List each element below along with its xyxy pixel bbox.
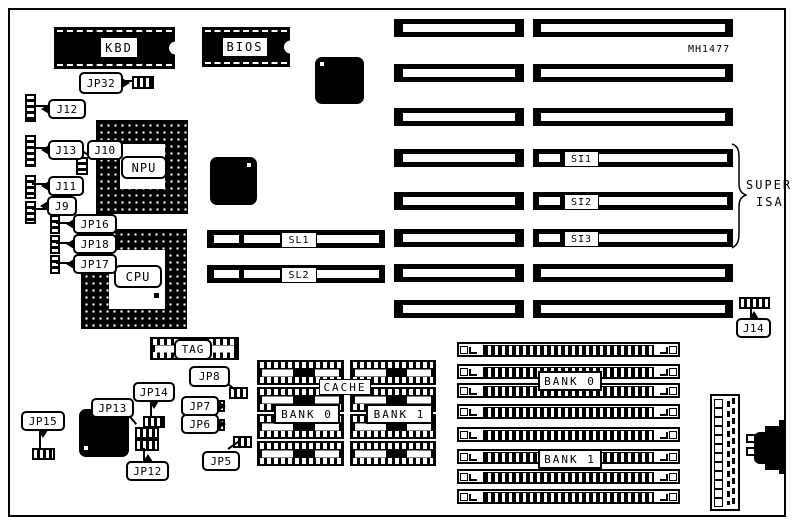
callout-jp12-text: JP12 <box>133 465 162 478</box>
dip-pins <box>353 362 433 368</box>
keyboard-din-connector-nose <box>754 432 768 464</box>
si3-slot-label: SI3 <box>564 231 599 247</box>
din-pin <box>746 434 756 443</box>
dip-body <box>355 450 386 457</box>
simm-socket <box>457 404 680 419</box>
simm-latch <box>661 367 677 376</box>
slot-key <box>597 234 727 242</box>
simm-latch <box>661 386 677 395</box>
simm-latch <box>460 367 476 376</box>
simm-socket <box>457 427 680 442</box>
simm-latch <box>460 386 476 395</box>
cache-area-label: CACHE <box>319 379 371 395</box>
cache-chip <box>350 441 436 466</box>
power-connector <box>710 394 740 511</box>
npu-label: NPU <box>121 156 167 179</box>
slot-key <box>541 269 725 277</box>
simm-latch <box>661 345 677 354</box>
simm-socket <box>457 342 680 357</box>
callout-j11: J11 <box>48 176 84 196</box>
npu-socket: NPU <box>96 120 188 214</box>
dip-pins <box>260 431 341 437</box>
kbd-chip-pins-top <box>57 30 172 32</box>
slot-key <box>403 69 515 77</box>
motherboard-diagram: KBD BIOS NPU CPU <box>0 0 800 527</box>
si2-slot-label: SI2 <box>564 194 599 210</box>
bios-chip-pins-bottom <box>205 62 287 64</box>
callout-jp8-text: JP8 <box>199 370 220 383</box>
pin-header-jp17 <box>50 255 60 274</box>
dip-pins <box>260 458 341 464</box>
simm-latch <box>460 430 476 439</box>
model-number: MH1477 <box>688 44 730 55</box>
arrow-up-icon <box>143 454 153 462</box>
simm-latch <box>460 407 476 416</box>
arrow-left-icon <box>66 259 74 269</box>
pin-header-jp18 <box>50 235 60 254</box>
cpu-label: CPU <box>114 265 162 288</box>
callout-jp13-text: JP13 <box>98 402 127 415</box>
isa-slot <box>533 264 733 282</box>
sl2-slot-label: SL2 <box>281 267 317 283</box>
glue-chip-mid <box>210 157 257 205</box>
callout-jp7: JP7 <box>181 396 219 416</box>
din-pin <box>746 447 756 456</box>
jumper-jp15 <box>32 448 55 460</box>
callout-jp32-text: JP32 <box>87 77 116 90</box>
kbd-chip-pins-bottom <box>57 64 172 66</box>
power-pin <box>714 435 723 444</box>
simm-bank0-label: BANK 0 <box>538 371 602 391</box>
callout-j9: J9 <box>47 196 77 216</box>
bios-chip-label: BIOS <box>222 37 268 57</box>
callout-jp32: JP32 <box>79 72 123 94</box>
dip-body <box>262 369 293 376</box>
pin-header-j9 <box>25 201 36 224</box>
simm-pins <box>483 345 654 356</box>
callout-j9-text: J9 <box>55 200 69 213</box>
callout-jp16: JP16 <box>73 214 117 234</box>
dip-pins <box>353 431 433 437</box>
sl1-slot-label: SL1 <box>281 232 317 248</box>
si1-slot-label: SI1 <box>564 151 599 167</box>
slot-key <box>403 305 515 313</box>
slot-key <box>403 154 515 162</box>
pin-header-j12 <box>25 94 36 122</box>
isa-slot <box>394 149 524 167</box>
arrow-left-icon <box>66 239 74 249</box>
slot-key <box>403 113 515 121</box>
dip-body <box>407 396 431 403</box>
slot-key <box>539 234 560 242</box>
dip-pins <box>260 362 341 368</box>
dip-body <box>262 423 293 430</box>
tag-chip-label: TAG <box>174 339 212 360</box>
dip-body <box>355 369 386 376</box>
dip-body <box>355 396 386 403</box>
kbd-chip-notch <box>169 42 176 55</box>
slot-key <box>214 270 239 278</box>
slot-key <box>315 270 379 278</box>
callout-jp18: JP18 <box>73 234 117 254</box>
jumper-jp13 <box>135 427 159 439</box>
slot-key <box>244 270 280 278</box>
isa-slot <box>394 108 524 126</box>
callout-j14-text: J14 <box>743 322 764 335</box>
isa-slot <box>533 64 733 82</box>
arrow-left-icon <box>66 219 74 229</box>
slot-key <box>597 154 727 162</box>
isa-slot <box>394 300 524 318</box>
super-isa-text-line2: ISA <box>756 195 784 209</box>
slot-key <box>539 197 560 205</box>
callout-jp15: JP15 <box>21 411 65 431</box>
dip-body <box>315 369 339 376</box>
isa-slot <box>394 264 524 282</box>
jumper-jp12 <box>135 439 159 451</box>
callout-jp6: JP6 <box>181 414 219 434</box>
pin1-dot <box>320 62 324 66</box>
slot-key <box>315 235 379 243</box>
cache-chip <box>257 441 344 466</box>
power-pin <box>714 480 723 489</box>
slot-key <box>403 234 515 242</box>
arrow-down-icon <box>38 430 48 438</box>
dip-body <box>407 369 431 376</box>
dip-body <box>315 450 339 457</box>
simm-latch <box>661 430 677 439</box>
callout-jp16-text: JP16 <box>81 218 110 231</box>
callout-jp8: JP8 <box>189 366 230 387</box>
callout-j13: J13 <box>48 140 84 160</box>
callout-j12: J12 <box>48 99 86 119</box>
isa-slot-si3: SI3 <box>533 229 733 247</box>
callout-j10-text: J10 <box>94 144 115 157</box>
callout-jp5: JP5 <box>202 451 240 471</box>
simm-socket <box>457 489 680 504</box>
power-pin <box>714 453 723 462</box>
simm-latch <box>661 407 677 416</box>
jumper-j14 <box>739 297 770 309</box>
callout-j10: J10 <box>87 140 123 160</box>
slot-key <box>539 154 560 162</box>
power-pin-row <box>732 398 735 507</box>
arrow-up-icon <box>749 311 759 319</box>
super-isa-brace <box>729 143 747 249</box>
slot-key <box>541 24 725 32</box>
arrow-down-icon <box>149 401 159 409</box>
isa-slot <box>394 192 524 210</box>
bios-chip-notch <box>284 41 291 54</box>
callout-j13-text: J13 <box>55 144 76 157</box>
power-pin <box>714 498 723 507</box>
sl1-slot: SL1 <box>207 230 385 248</box>
dip-body <box>262 450 293 457</box>
dip-body <box>315 423 339 430</box>
simm-latch <box>460 492 476 501</box>
board-outline: KBD BIOS NPU CPU <box>8 8 786 517</box>
simm-latch <box>661 472 677 481</box>
dip-pins <box>353 443 433 449</box>
isa-slot <box>533 108 733 126</box>
dip-body <box>355 423 386 430</box>
simm-latch <box>460 452 476 461</box>
arrow-left-icon <box>40 201 48 211</box>
jumper-jp32 <box>132 76 154 89</box>
simm-latch <box>460 345 476 354</box>
isa-slot <box>394 19 524 37</box>
isa-slot <box>394 229 524 247</box>
dip-pins <box>260 443 341 449</box>
arrow-right-icon <box>218 419 226 429</box>
callout-jp15-text: JP15 <box>29 415 58 428</box>
simm-pins <box>483 492 654 503</box>
power-pin <box>714 489 723 498</box>
arrow-left-icon <box>41 181 49 191</box>
kbd-chip-label: KBD <box>100 37 138 58</box>
isa-slot-si1: SI1 <box>533 149 733 167</box>
slot-key <box>403 197 515 205</box>
simm-pins <box>483 472 654 483</box>
sl2-slot: SL2 <box>207 265 385 283</box>
kbd-chip: KBD <box>54 27 175 69</box>
dip-body <box>407 423 431 430</box>
callout-jp17-text: JP17 <box>81 258 110 271</box>
simm-latch <box>661 452 677 461</box>
simm-pins <box>483 430 654 441</box>
slot-key <box>541 113 725 121</box>
pin1-dot <box>247 163 251 167</box>
pin-header-j11 <box>25 175 36 199</box>
pin1-dot <box>84 446 88 450</box>
pin-header-j13 <box>25 135 36 167</box>
power-pin <box>714 462 723 471</box>
glue-chip-top <box>315 57 364 104</box>
cpu-pin1-dot <box>154 293 159 298</box>
callout-jp13: JP13 <box>91 398 134 418</box>
slot-key <box>244 235 280 243</box>
callout-jp6-text: JP6 <box>189 418 210 431</box>
simm-bank1-label: BANK 1 <box>538 449 602 469</box>
power-pin <box>714 426 723 435</box>
arrow-right-icon <box>218 401 226 411</box>
power-pin <box>714 444 723 453</box>
bios-chip: BIOS <box>202 27 290 67</box>
dip-body <box>315 396 339 403</box>
simm-socket <box>457 469 680 484</box>
callout-jp17: JP17 <box>73 254 117 274</box>
simm-latch <box>460 472 476 481</box>
power-pin <box>714 408 723 417</box>
simm-latch <box>661 492 677 501</box>
power-pin <box>714 417 723 426</box>
arrow-left-icon <box>41 104 49 114</box>
isa-slot <box>533 300 733 318</box>
callout-jp7-text: JP7 <box>189 400 210 413</box>
slot-key <box>214 235 239 243</box>
callout-jp14: JP14 <box>133 382 175 402</box>
simm-pins <box>483 407 654 418</box>
power-pin-row <box>727 401 730 505</box>
slot-key <box>541 69 725 77</box>
dip-body <box>209 345 234 352</box>
cache-bank0-label: BANK 0 <box>274 404 340 424</box>
callout-j11-text: J11 <box>55 180 76 193</box>
callout-jp12: JP12 <box>126 461 169 481</box>
dip-body <box>262 396 293 403</box>
slot-key <box>403 269 515 277</box>
callout-jp5-text: JP5 <box>210 455 231 468</box>
slot-key <box>541 305 725 313</box>
pin-header-jp16 <box>50 215 60 234</box>
power-pin <box>714 399 723 408</box>
dip-pins <box>353 458 433 464</box>
bios-chip-pins-top <box>205 30 287 32</box>
isa-slot-si2: SI2 <box>533 192 733 210</box>
callout-j12-text: J12 <box>56 103 77 116</box>
callout-jp18-text: JP18 <box>81 238 110 251</box>
callout-j14: J14 <box>736 318 771 338</box>
dip-body <box>407 450 431 457</box>
isa-slot <box>394 64 524 82</box>
callout-jp14-text: JP14 <box>140 386 169 399</box>
cache-bank1-label: BANK 1 <box>366 404 433 424</box>
super-isa-text-line1: SUPER <box>746 178 792 192</box>
slot-key <box>403 24 515 32</box>
isa-slot <box>533 19 733 37</box>
arrow-right-icon <box>122 78 130 88</box>
arrow-left-icon <box>41 145 49 155</box>
power-pin <box>714 471 723 480</box>
slot-key <box>597 197 727 205</box>
